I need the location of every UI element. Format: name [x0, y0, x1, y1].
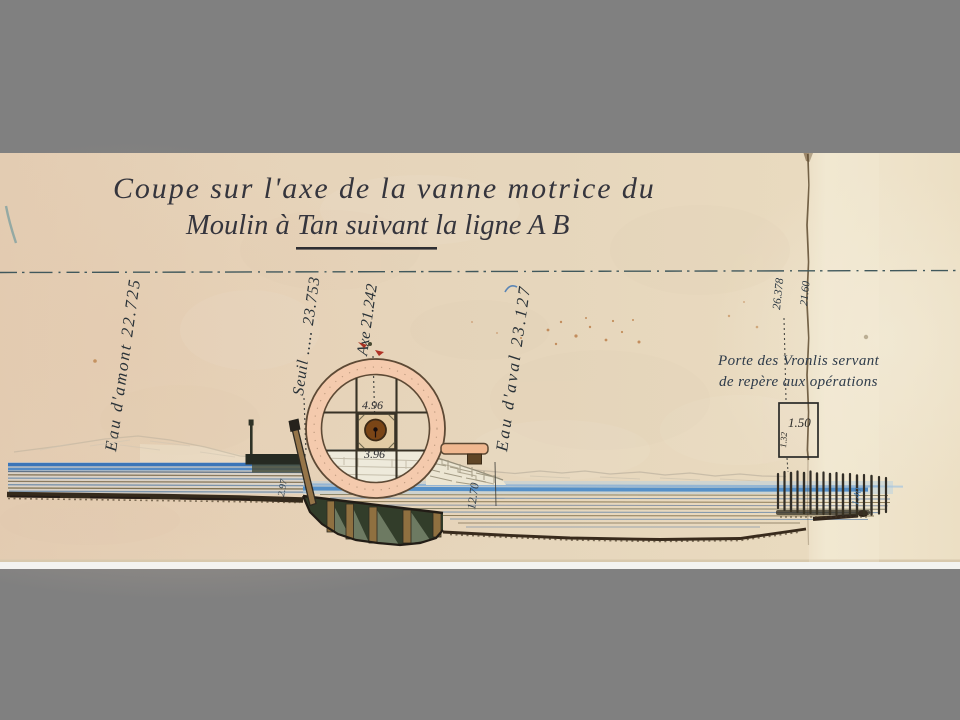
- svg-text:Porte des Vronlis servant: Porte des Vronlis servant: [717, 353, 880, 369]
- svg-text:3.96: 3.96: [363, 447, 385, 461]
- svg-text:1.32: 1.32: [778, 431, 789, 448]
- svg-text:1.50: 1.50: [788, 415, 811, 430]
- svg-text:de repère aux opérations: de repère aux opérations: [719, 374, 878, 390]
- svg-text:Moulin à Tan suivant la ligne: Moulin à Tan suivant la ligne A B: [185, 210, 569, 241]
- svg-text:4.96: 4.96: [362, 398, 383, 412]
- svg-text:Coupe sur l'axe de la vanne mo: Coupe sur l'axe de la vanne motrice du: [113, 172, 656, 205]
